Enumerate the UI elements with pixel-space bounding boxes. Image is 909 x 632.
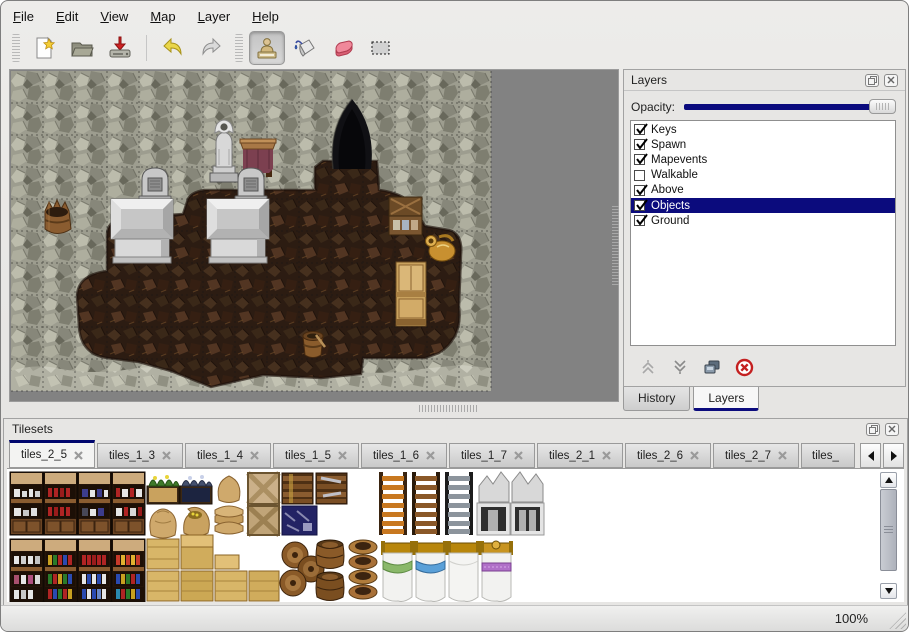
close-tab-icon[interactable] — [250, 451, 259, 460]
jar-shelf — [112, 472, 145, 535]
layer-name: Keys — [651, 124, 677, 136]
tilesets-panel: Tilesets tiles_2_5 tiles_1_3 tiles_1_4 — [3, 418, 908, 606]
move-layer-up-button[interactable] — [638, 357, 658, 377]
dock-tab-layers[interactable]: Layers — [693, 387, 759, 411]
eraser-icon — [330, 35, 356, 61]
open-sack — [184, 507, 210, 536]
slat-crate — [316, 473, 347, 504]
opacity-label: Opacity: — [631, 100, 675, 114]
zoom-level: 100% — [835, 611, 868, 626]
menu-item-layer[interactable]: Layer — [198, 9, 231, 24]
stone-altar-right — [207, 199, 269, 263]
delete-layer-button[interactable] — [734, 357, 754, 377]
bed-white — [447, 541, 480, 602]
close-panel-icon[interactable] — [884, 74, 898, 87]
scroll-up-icon[interactable] — [880, 472, 897, 488]
layer-name: Spawn — [651, 139, 686, 151]
close-panel-icon[interactable] — [885, 423, 899, 436]
layer-visibility-checkbox[interactable] — [634, 139, 645, 150]
tileset-tab-tiles_1_4[interactable]: tiles_1_4 — [185, 443, 271, 468]
menu-item-edit[interactable]: Edit — [56, 9, 78, 24]
tileset-tiles — [9, 470, 549, 602]
stone-hearth — [477, 472, 510, 535]
stone-hearth — [511, 472, 544, 535]
tileset-tab-tiles_1_3[interactable]: tiles_1_3 — [97, 443, 183, 468]
book-shelf — [78, 539, 111, 602]
tileset-tab-tiles_2_7[interactable]: tiles_2_7 — [713, 443, 799, 468]
opacity-slider-track — [684, 104, 894, 110]
layers-panel-title: Layers — [631, 73, 667, 87]
scrollbar-thumb[interactable] — [880, 489, 897, 571]
eraser-tool-button[interactable] — [325, 31, 361, 65]
tileset-scrollbar[interactable] — [880, 472, 898, 599]
layer-name: Ground — [651, 215, 689, 227]
open-folder-icon — [69, 35, 95, 61]
toolbar-drag-handle[interactable] — [12, 34, 20, 62]
orange-ladder — [379, 472, 407, 535]
float-panel-icon[interactable] — [866, 423, 880, 436]
close-tab-icon[interactable] — [338, 451, 347, 460]
bed-blue — [414, 541, 447, 602]
tilesets-panel-title: Tilesets — [12, 422, 53, 436]
iron-ladder — [445, 472, 473, 535]
layer-row[interactable]: Ground — [631, 213, 895, 228]
map-canvas[interactable] — [9, 69, 619, 402]
wooden-cabinet — [396, 262, 426, 326]
new-file-icon — [31, 35, 57, 61]
paint-bucket-icon — [292, 35, 318, 61]
yellow-crates — [147, 535, 279, 601]
close-tab-icon[interactable] — [602, 451, 611, 460]
layer-row[interactable]: Spawn — [631, 137, 895, 152]
new-file-button[interactable] — [26, 31, 62, 65]
bottle-shelf — [44, 472, 77, 535]
tileset-tab-tiles_1_5[interactable]: tiles_1_5 — [273, 443, 359, 468]
map-scene — [10, 70, 618, 401]
tileset-tab-tiles_2_1[interactable]: tiles_2_1 — [537, 443, 623, 468]
layer-visibility-checkbox[interactable] — [634, 124, 645, 135]
redo-icon — [198, 35, 224, 61]
planter — [147, 475, 179, 504]
toolbar-separator — [146, 35, 147, 61]
fill-tool-button[interactable] — [287, 31, 323, 65]
slat-crate — [282, 473, 313, 504]
layer-name: Walkable — [651, 169, 698, 181]
bed-green — [381, 541, 414, 602]
layer-row[interactable]: Above — [631, 183, 895, 198]
close-tab-icon[interactable] — [74, 451, 83, 460]
china-shelf — [78, 472, 111, 535]
dock-tab-history[interactable]: History — [623, 387, 690, 411]
menu-item-file[interactable]: File — [13, 9, 34, 24]
tileset-tab-tiles_1_6[interactable]: tiles_1_6 — [361, 443, 447, 468]
layers-panel-header: Layers — [624, 70, 905, 91]
layer-visibility-checkbox[interactable] — [634, 215, 645, 226]
undo-button[interactable] — [155, 31, 191, 65]
layer-visibility-checkbox[interactable] — [634, 200, 645, 211]
opacity-slider[interactable] — [684, 98, 896, 115]
toolbar-drag-handle[interactable] — [235, 34, 243, 62]
close-tab-icon[interactable] — [778, 451, 787, 460]
undo-icon — [160, 35, 186, 61]
opacity-slider-handle[interactable] — [869, 99, 896, 114]
vertical-splitter-handle[interactable] — [612, 206, 619, 286]
layer-row[interactable]: Keys — [631, 122, 895, 137]
layer-name: Objects — [651, 200, 690, 212]
crate-stack — [389, 197, 422, 235]
grain-sack — [150, 509, 176, 538]
menu-item-help[interactable]: Help — [252, 9, 279, 24]
move-layer-down-button[interactable] — [670, 357, 690, 377]
save-file-button[interactable] — [102, 31, 138, 65]
layer-name: Mapevents — [651, 154, 707, 166]
tilesets-panel-header: Tilesets — [4, 419, 907, 439]
layer-row[interactable]: Mapevents — [631, 152, 895, 167]
layer-name: Above — [651, 184, 684, 196]
float-panel-icon[interactable] — [865, 74, 879, 87]
book-shelf — [112, 539, 145, 602]
toolbar — [1, 29, 908, 67]
close-tab-icon[interactable] — [426, 451, 435, 460]
clay-pot-stack — [349, 540, 377, 599]
navy-crate — [282, 506, 317, 535]
menubar: FileEditViewMapLayerHelp — [13, 5, 279, 27]
tileset-tab-tiles_1_7[interactable]: tiles_1_7 — [449, 443, 535, 468]
duplicate-layer-button[interactable] — [702, 357, 722, 377]
bed-purple — [480, 541, 513, 602]
brown-ladder — [412, 472, 440, 535]
select-tool-button[interactable] — [363, 31, 399, 65]
planter — [180, 475, 212, 504]
book-shelf — [44, 539, 77, 602]
scroll-tabs-left-button[interactable] — [860, 443, 881, 468]
close-tab-icon[interactable] — [514, 451, 523, 460]
stamp-tool-button[interactable] — [249, 31, 285, 65]
scroll-down-icon[interactable] — [880, 583, 897, 599]
save-icon — [107, 35, 133, 61]
sack-pile — [215, 476, 243, 534]
open-file-button[interactable] — [64, 31, 100, 65]
app-window: FileEditViewMapLayerHelp — [0, 0, 909, 632]
layer-visibility-checkbox[interactable] — [634, 154, 645, 165]
tab-scroll-buttons — [858, 443, 904, 468]
layer-visibility-checkbox[interactable] — [634, 185, 645, 196]
layer-list: Keys Spawn Mapevents Walkable — [630, 120, 896, 346]
window-resize-grip[interactable] — [886, 609, 906, 629]
tileset-tab-strip: tiles_2_5 tiles_1_3 tiles_1_4 tiles_1_5 … — [9, 440, 857, 468]
menu-item-map[interactable]: Map — [150, 9, 175, 24]
close-tab-icon[interactable] — [162, 451, 171, 460]
dish-shelf — [10, 472, 43, 535]
crate-x — [248, 506, 279, 535]
tileset-tab-tiles_2_6[interactable]: tiles_2_6 — [625, 443, 711, 468]
book-shelf — [10, 539, 43, 602]
menu-item-view[interactable]: View — [100, 9, 128, 24]
statusbar: 100% — [1, 605, 908, 631]
horizontal-splitter-handle[interactable] — [419, 405, 477, 412]
tileset-tab-tiles_[interactable]: tiles_ — [801, 443, 855, 468]
tileset-tab-tiles_2_5[interactable]: tiles_2_5 — [9, 440, 95, 468]
layer-visibility-checkbox[interactable] — [634, 170, 645, 181]
layer-actions — [630, 352, 896, 382]
stamp-icon — [254, 35, 280, 61]
dock-tabs: HistoryLayers — [623, 387, 759, 411]
scroll-tabs-right-button[interactable] — [883, 443, 904, 468]
crate-x — [248, 473, 279, 504]
layer-row[interactable]: Objects — [631, 198, 895, 213]
close-tab-icon[interactable] — [690, 451, 699, 460]
tileset-view[interactable] — [7, 468, 904, 602]
layer-row[interactable]: Walkable — [631, 168, 895, 183]
stone-altar-left — [111, 199, 173, 263]
layers-panel: Layers Opacity: Keys — [623, 69, 906, 387]
rect-select-icon — [368, 35, 394, 61]
redo-button[interactable] — [193, 31, 229, 65]
